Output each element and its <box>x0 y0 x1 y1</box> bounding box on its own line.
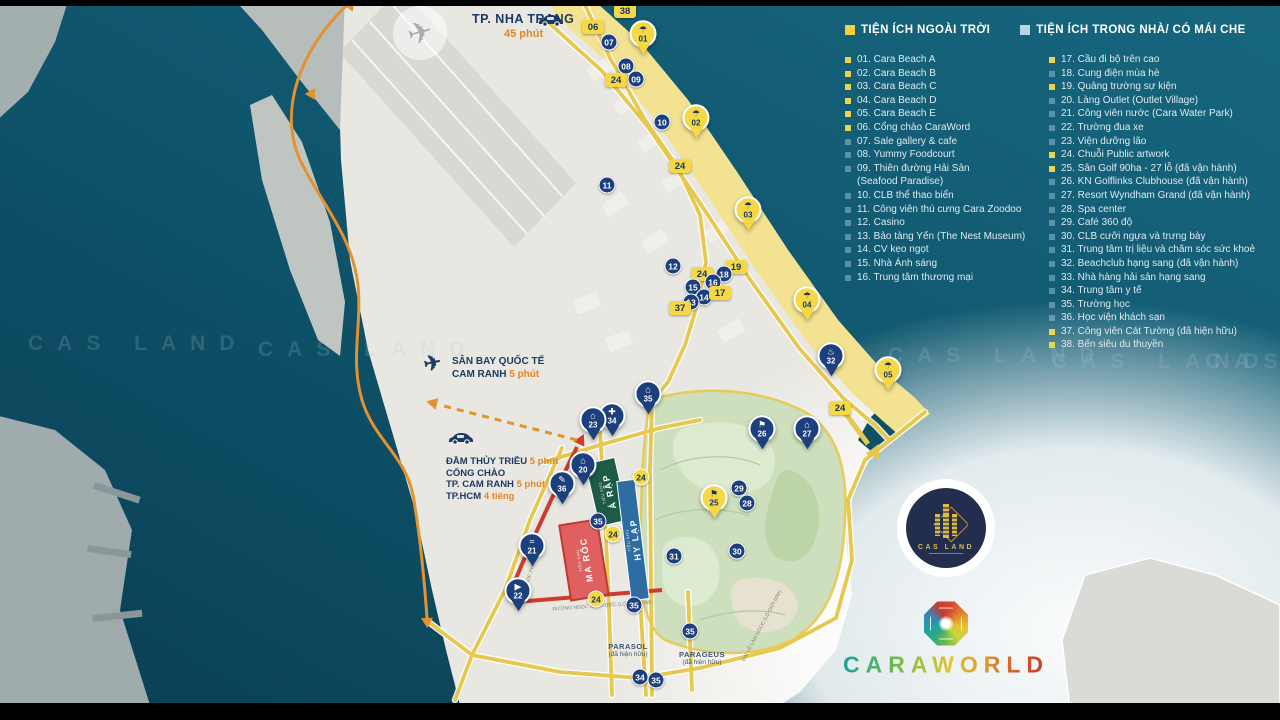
legend-item-label: 36. Học viện khách sạn <box>1061 311 1165 325</box>
indoor-bullet-icon <box>1049 193 1055 199</box>
legend-item-label: 08. Yummy Foodcourt <box>857 148 955 162</box>
caraworld-logo: CARAWORLD <box>843 602 1049 679</box>
legend-item-label: 25. Sân Golf 90ha - 27 lỗ (đã vận hành) <box>1061 162 1237 176</box>
legend-item-label: 18. Cung điện mùa hè <box>1061 67 1159 81</box>
airplane-circle-icon: ✈ <box>393 6 447 60</box>
legend-item: 04. Cara Beach D <box>845 94 1049 108</box>
legend-item: 18. Cung điện mùa hè <box>1049 67 1275 81</box>
legend-item: 23. Viện dưỡng lão <box>1049 135 1275 149</box>
indoor-bullet-icon <box>845 275 851 281</box>
caraworld-emblem-icon <box>924 602 968 646</box>
legend-item: 05. Cara Beach E <box>845 107 1049 121</box>
golf-course <box>640 391 846 653</box>
legend-item: 21. Công viên nước (Cara Water Park) <box>1049 107 1275 121</box>
indoor-bullet-icon <box>1049 125 1055 131</box>
outdoor-bullet-icon <box>845 71 851 77</box>
legend-item-label: 35. Trường học <box>1061 298 1130 312</box>
legend-item: 17. Cầu đi bộ trên cao <box>1049 53 1275 67</box>
note-west-line: CỔNG CHÀO <box>446 468 558 480</box>
car-icon <box>538 14 564 32</box>
legend-item-label2: (Seafood Paradise) <box>857 175 943 189</box>
airplane-icon: ✈ <box>423 356 443 372</box>
legend-item-label: 16. Trung tâm thương mại <box>857 271 973 285</box>
legend-item-label: 14. CV kẹo ngọt <box>857 243 929 257</box>
legend-item-label: 02. Cara Beach B <box>857 67 936 81</box>
legend-item: 08. Yummy Foodcourt <box>845 148 1049 162</box>
legend-item-label: 13. Bảo tàng Yến (The Nest Museum) <box>857 230 1025 244</box>
indoor-bullet-icon <box>1049 275 1055 281</box>
outdoor-bullet-icon <box>845 111 851 117</box>
legend-left-column: 01. Cara Beach A02. Cara Beach B03. Cara… <box>845 53 1049 352</box>
note-nha-trang: TP. NHA TRANG 45 phút <box>472 12 574 40</box>
legend-item: 27. Resort Wyndham Grand (đã vận hành) <box>1049 189 1275 203</box>
legend-item: 10. CLB thể thao biển <box>845 189 1049 203</box>
indoor-bullet-icon <box>845 234 851 240</box>
indoor-bullet-icon <box>845 261 851 267</box>
indoor-bullet-icon <box>1049 179 1055 185</box>
indoor-bullet-icon <box>845 247 851 253</box>
legend-item: 13. Bảo tàng Yến (The Nest Museum) <box>845 230 1049 244</box>
outdoor-bullet-icon <box>1049 329 1055 335</box>
legend-item: 36. Học viện khách sạn <box>1049 311 1275 325</box>
legend-item-label: 37. Công viên Cát Tường (đã hiện hữu) <box>1061 325 1237 339</box>
indoor-bullet-icon <box>1049 71 1055 77</box>
legend-item: 37. Công viên Cát Tường (đã hiện hữu) <box>1049 325 1275 339</box>
legend-item-label: 26. KN Golflinks Clubhouse (đã vận hành) <box>1061 175 1248 189</box>
caraworld-wordmark: CARAWORLD <box>843 652 1049 679</box>
legend-item-label: 30. CLB cưỡi ngựa và trưng bày <box>1061 230 1206 244</box>
legend-item: 29. Café 360 độ <box>1049 216 1275 230</box>
legend-item-label: 24. Chuỗi Public artwork <box>1061 148 1169 162</box>
legend-item-label: 17. Cầu đi bộ trên cao <box>1061 53 1159 67</box>
legend-item-label: 38. Bến siêu du thuyền <box>1061 338 1163 352</box>
outdoor-bullet-icon <box>1049 57 1055 63</box>
indoor-bullet-icon <box>845 139 851 145</box>
indoor-bullet-icon <box>1049 234 1055 240</box>
legend-item: 28. Spa center <box>1049 203 1275 217</box>
car-icon <box>538 14 564 27</box>
legend-item-label: 27. Resort Wyndham Grand (đã vận hành) <box>1061 189 1250 203</box>
legend: TIỆN ÍCH NGOÀI TRỜI TIỆN ÍCH TRONG NHÀ/ … <box>845 24 1275 352</box>
legend-item: 03. Cara Beach C <box>845 80 1049 94</box>
outdoor-square-icon <box>845 25 855 35</box>
legend-item: 06. Cổng chào CaraWord <box>845 121 1049 135</box>
indoor-bullet-icon <box>1049 315 1055 321</box>
legend-item: 35. Trường học <box>1049 298 1275 312</box>
outdoor-bullet-icon <box>845 84 851 90</box>
legend-item-label: 12. Casino <box>857 216 905 230</box>
outdoor-bullet-icon <box>1049 166 1055 172</box>
legend-item: 20. Làng Outlet (Outlet Village) <box>1049 94 1275 108</box>
legend-item: 02. Cara Beach B <box>845 67 1049 81</box>
airport-line2: CAM RANH 5 phút <box>452 369 544 382</box>
legend-item: 12. Casino <box>845 216 1049 230</box>
indoor-bullet-icon <box>845 166 851 172</box>
legend-item-label: 34. Trung tâm y tế <box>1061 284 1142 298</box>
legend-item-label: 15. Nhà Ánh sáng <box>857 257 937 271</box>
outdoor-bullet-icon <box>845 125 851 131</box>
legend-item-label: 31. Trung tâm trị liệu và chăm sóc sức k… <box>1061 243 1255 257</box>
indoor-bullet-icon <box>845 152 851 158</box>
legend-item-label: 32. Beachclub hạng sang (đã vận hành) <box>1061 257 1238 271</box>
legend-item-label: 01. Cara Beach A <box>857 53 935 67</box>
legend-item: 22. Trường đua xe <box>1049 121 1275 135</box>
note-west-line: ĐẦM THỦY TRIỀU 5 phút <box>446 456 558 468</box>
indoor-bullet-icon <box>1049 220 1055 226</box>
legend-item-label: 11. Công viên thú cưng Cara Zoodoo <box>857 203 1021 217</box>
indoor-bullet-icon <box>845 220 851 226</box>
indoor-bullet-icon <box>1049 98 1055 104</box>
airport-line1: SÂN BAY QUỐC TẾ <box>452 356 544 369</box>
indoor-bullet-icon <box>845 193 851 199</box>
spacer <box>845 179 851 185</box>
legend-item: 14. CV kẹo ngọt <box>845 243 1049 257</box>
legend-item-label: 05. Cara Beach E <box>857 107 936 121</box>
legend-item: 32. Beachclub hạng sang (đã vận hành) <box>1049 257 1275 271</box>
outdoor-bullet-icon <box>1049 152 1055 158</box>
legend-item: 26. KN Golflinks Clubhouse (đã vận hành) <box>1049 175 1275 189</box>
legend-item-label: 23. Viện dưỡng lão <box>1061 135 1146 149</box>
legend-right-column: 17. Cầu đi bộ trên cao18. Cung điện mùa … <box>1049 53 1275 352</box>
legend-item: 16. Trung tâm thương mại <box>845 271 1049 285</box>
legend-item: 01. Cara Beach A <box>845 53 1049 67</box>
letterbox-top <box>0 0 1280 6</box>
legend-item: 38. Bến siêu du thuyền <box>1049 338 1275 352</box>
outdoor-bullet-icon <box>1049 84 1055 90</box>
indoor-bullet-icon <box>1049 261 1055 267</box>
indoor-bullet-icon <box>1049 139 1055 145</box>
legend-item: 25. Sân Golf 90ha - 27 lỗ (đã vận hành) <box>1049 162 1275 176</box>
outdoor-bullet-icon <box>845 98 851 104</box>
note-west: ĐẦM THỦY TRIỀU 5 phútCỔNG CHÀOTP. CAM RA… <box>446 456 558 502</box>
legend-item: 11. Công viên thú cưng Cara Zoodoo <box>845 203 1049 217</box>
legend-item: 31. Trung tâm trị liệu và chăm sóc sức k… <box>1049 243 1275 257</box>
note-west-line: TP. CAM RANH 5 phút <box>446 479 558 491</box>
legend-item-label: 04. Cara Beach D <box>857 94 937 108</box>
legend-item: 30. CLB cưỡi ngựa và trưng bày <box>1049 230 1275 244</box>
casland-towers-icon <box>924 502 968 542</box>
legend-item-label: 33. Nhà hàng hải sản hạng sang <box>1061 271 1206 285</box>
masterplan-map: ✈ CAS LANDCAS LANDCAS LANDCAS LANDCAS LA… <box>0 0 1280 720</box>
indoor-bullet-icon <box>1049 111 1055 117</box>
legend-item-label: 19. Quảng trường sự kiện <box>1061 80 1177 94</box>
map-area: ✈ CAS LANDCAS LANDCAS LANDCAS LANDCAS LA… <box>0 0 1280 720</box>
legend-item-label: 21. Công viên nước (Cara Water Park) <box>1061 107 1233 121</box>
legend-item: 33. Nhà hàng hải sản hạng sang <box>1049 271 1275 285</box>
legend-item-label: 22. Trường đua xe <box>1061 121 1144 135</box>
legend-item-label: 03. Cara Beach C <box>857 80 937 94</box>
outdoor-bullet-icon <box>1049 342 1055 348</box>
outdoor-bullet-icon <box>845 57 851 63</box>
indoor-bullet-icon <box>845 207 851 213</box>
indoor-bullet-icon <box>1049 247 1055 253</box>
legend-item: 24. Chuỗi Public artwork <box>1049 148 1275 162</box>
indoor-bullet-icon <box>1049 288 1055 294</box>
legend-indoor-header: TIỆN ÍCH TRONG NHÀ/ CÓ MÁI CHE <box>1020 24 1245 36</box>
legend-item: 34. Trung tâm y tế <box>1049 284 1275 298</box>
legend-item: 09. Thiên đường Hải Sản <box>845 162 1049 176</box>
legend-item-label: 20. Làng Outlet (Outlet Village) <box>1061 94 1198 108</box>
indoor-bullet-icon <box>1049 207 1055 213</box>
legend-item-label: 28. Spa center <box>1061 203 1126 217</box>
car-icon <box>448 432 474 449</box>
legend-item: 15. Nhà Ánh sáng <box>845 257 1049 271</box>
casland-wordmark: CAS LAND <box>918 544 974 551</box>
legend-item-label: 09. Thiên đường Hải Sản <box>857 162 970 176</box>
legend-item-label: 06. Cổng chào CaraWord <box>857 121 970 135</box>
letterbox-bottom <box>0 703 1280 720</box>
legend-item-label: 07. Sale gallery & cafe <box>857 135 957 149</box>
casland-logo: CAS LAND <box>897 479 995 577</box>
car-icon <box>448 432 474 445</box>
legend-item-label: 29. Café 360 độ <box>1061 216 1132 230</box>
legend-outdoor-header: TIỆN ÍCH NGOÀI TRỜI <box>845 24 990 36</box>
note-airport: ✈ SÂN BAY QUỐC TẾ CAM RANH 5 phút <box>452 356 544 381</box>
indoor-square-icon <box>1020 25 1030 35</box>
legend-item-label: 10. CLB thể thao biển <box>857 189 954 203</box>
casland-tagline-line <box>929 553 963 554</box>
indoor-bullet-icon <box>1049 302 1055 308</box>
legend-item-wrap: (Seafood Paradise) <box>845 175 1049 189</box>
note-west-line: TP.HCM 4 tiếng <box>446 491 558 503</box>
legend-item: 19. Quảng trường sự kiện <box>1049 80 1275 94</box>
legend-item: 07. Sale gallery & cafe <box>845 135 1049 149</box>
